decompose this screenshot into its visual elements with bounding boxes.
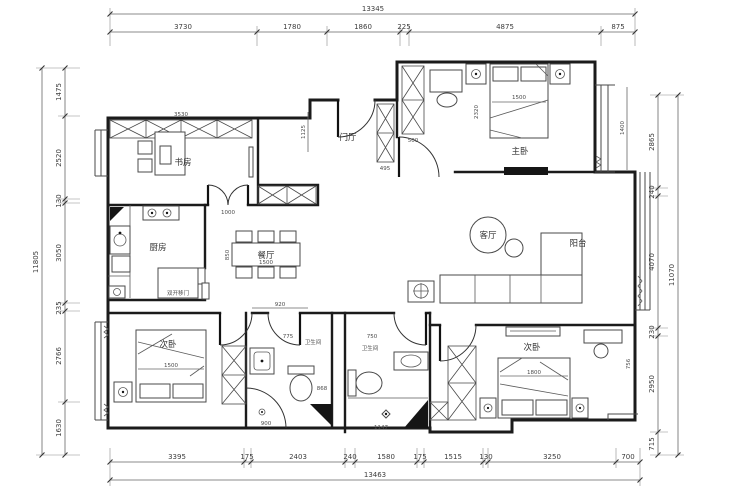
dim-label: 240 [648, 185, 656, 198]
inner-dim: 1500 [164, 363, 178, 369]
room-label-bedroom-bl: 次卧 [159, 339, 177, 350]
floor-heating-manifold [408, 281, 434, 302]
dim-chain-top: 13345 3730 1780 1860 225 4875 875 [108, 5, 638, 46]
bedroom-br-tv [506, 327, 560, 336]
dim-label: 2865 [648, 133, 656, 151]
dim-label: 3730 [174, 23, 192, 31]
inner-dim: 500 [408, 138, 419, 144]
master-bed [490, 64, 548, 138]
dim-label: 3050 [55, 244, 63, 262]
dim-label: 2403 [289, 453, 307, 461]
dim-label: 130 [55, 194, 63, 207]
dim-label: 225 [397, 23, 410, 31]
inner-dim: 750 [367, 334, 378, 340]
dim-label: 715 [648, 437, 656, 450]
bedroom-br-corner-closet [430, 402, 448, 420]
room-label-master: 主卧 [511, 146, 529, 157]
dim-label: 2950 [648, 375, 656, 393]
dim-total-right: 11070 [668, 264, 676, 286]
bay-window-study [95, 130, 108, 176]
inner-dim: 920 [275, 302, 286, 308]
dim-label: 1630 [55, 419, 63, 437]
slope-marker [404, 400, 428, 428]
master-dresser [430, 70, 462, 107]
bath2-vanity [394, 352, 428, 370]
dim-label: 175 [240, 453, 253, 461]
master-nightstand-right [550, 64, 570, 84]
dim-label: 2520 [55, 149, 63, 167]
dim-total-top: 13345 [362, 5, 384, 13]
room-label-balcony: 阳台 [569, 238, 586, 249]
bedroom-br-nightstand-left [480, 398, 496, 418]
living-tv [504, 167, 548, 175]
kitchen-washer [109, 286, 125, 298]
bay-window-master [595, 85, 615, 172]
inner-dim: 3530 [174, 112, 188, 118]
room-label-study: 书房 [174, 157, 191, 168]
dim-total-bottom: 13463 [364, 471, 386, 479]
dim-label: 1580 [377, 453, 395, 461]
dim-label: 3395 [168, 453, 186, 461]
dim-label: 4875 [496, 23, 514, 31]
entry-door [338, 100, 375, 137]
dim-chain-left: 11805 1475 2520 130 3050 235 2766 1630 [32, 66, 80, 458]
inner-dim: 1500 [259, 260, 273, 266]
kitchen-sliding-door [198, 268, 209, 299]
bedroom-br-nightstand-right [572, 398, 588, 418]
bath2-door [394, 313, 426, 345]
slope-marker [110, 207, 124, 221]
inner-dim: 2320 [474, 105, 480, 119]
dim-label: 175 [413, 453, 426, 461]
room-label-living: 客厅 [479, 230, 497, 241]
inner-dim: 1800 [527, 370, 541, 376]
slope-marker [310, 404, 332, 426]
inner-dim: 1147 [374, 425, 388, 431]
room-label-hall: 门厅 [339, 132, 357, 143]
master-bedroom-door [399, 137, 439, 177]
bay-window-bedroom-bl [95, 322, 108, 420]
annotation-sliding-door: 双开移门 [167, 289, 189, 297]
dim-label: 875 [611, 23, 624, 31]
bedroom-br-door [440, 325, 476, 361]
dim-label: 1860 [354, 23, 372, 31]
dim-label: 2766 [55, 347, 63, 365]
room-label-kitchen: 厨房 [149, 242, 166, 253]
inner-dim: 756 [626, 358, 632, 369]
room-label-bath1: 卫生间 [305, 338, 322, 346]
dim-label: 235 [55, 301, 63, 314]
floor-plan-page: 13345 3730 1780 1860 225 4875 875 3395 1… [0, 0, 740, 500]
bedroom-br-bed [498, 358, 570, 418]
inner-dim: 900 [261, 421, 272, 427]
dim-total-left: 11805 [32, 251, 40, 273]
inner-dim: 1000 [221, 210, 235, 216]
kitchen-sink [110, 226, 130, 254]
study-double-door [208, 185, 248, 205]
dim-label: 130 [479, 453, 492, 461]
inner-dim: 868 [317, 386, 328, 392]
floor-plan-drawing: 13345 3730 1780 1860 225 4875 875 3395 1… [0, 0, 740, 500]
bath2-toilet [348, 370, 382, 396]
inner-dim: 775 [283, 334, 294, 340]
inner-dim: 1125 [301, 125, 307, 139]
master-wardrobe [402, 66, 424, 134]
study-desk [138, 132, 253, 177]
dim-label: 240 [343, 453, 356, 461]
bath1-sink [250, 348, 274, 374]
bath1-toilet [288, 366, 314, 401]
dim-label: 230 [648, 325, 656, 338]
bedroom-br-wardrobe [448, 346, 476, 420]
inner-dim: 495 [380, 166, 391, 172]
dim-label: 3250 [543, 453, 561, 461]
inner-dim: 1500 [512, 95, 526, 101]
dim-chain-right: 2865 240 4070 230 2950 715 11070 [648, 93, 684, 458]
dim-label: 700 [621, 453, 634, 461]
bedroom-bl-wardrobe [222, 346, 246, 404]
room-label-bedroom-br: 次卧 [523, 342, 541, 353]
dim-label: 1515 [444, 453, 462, 461]
dim-chain-bottom: 3395 175 2403 240 1580 175 1515 130 3250… [108, 448, 643, 486]
bedroom-bl-nightstand [114, 382, 132, 402]
master-nightstand-left [466, 64, 486, 84]
inner-dim: 850 [225, 249, 231, 260]
hall-recess-cabinet [258, 186, 316, 204]
hall-shoe-cabinet [377, 104, 394, 162]
dim-label: 1475 [55, 83, 63, 101]
bath1-door [268, 313, 300, 345]
inner-dim: 1400 [620, 121, 626, 135]
dim-label: 4070 [648, 253, 656, 271]
bedroom-br-desk [584, 330, 622, 358]
room-label-bath2: 卫生间 [362, 344, 379, 352]
dim-label: 1780 [283, 23, 301, 31]
study-tv [249, 147, 253, 177]
